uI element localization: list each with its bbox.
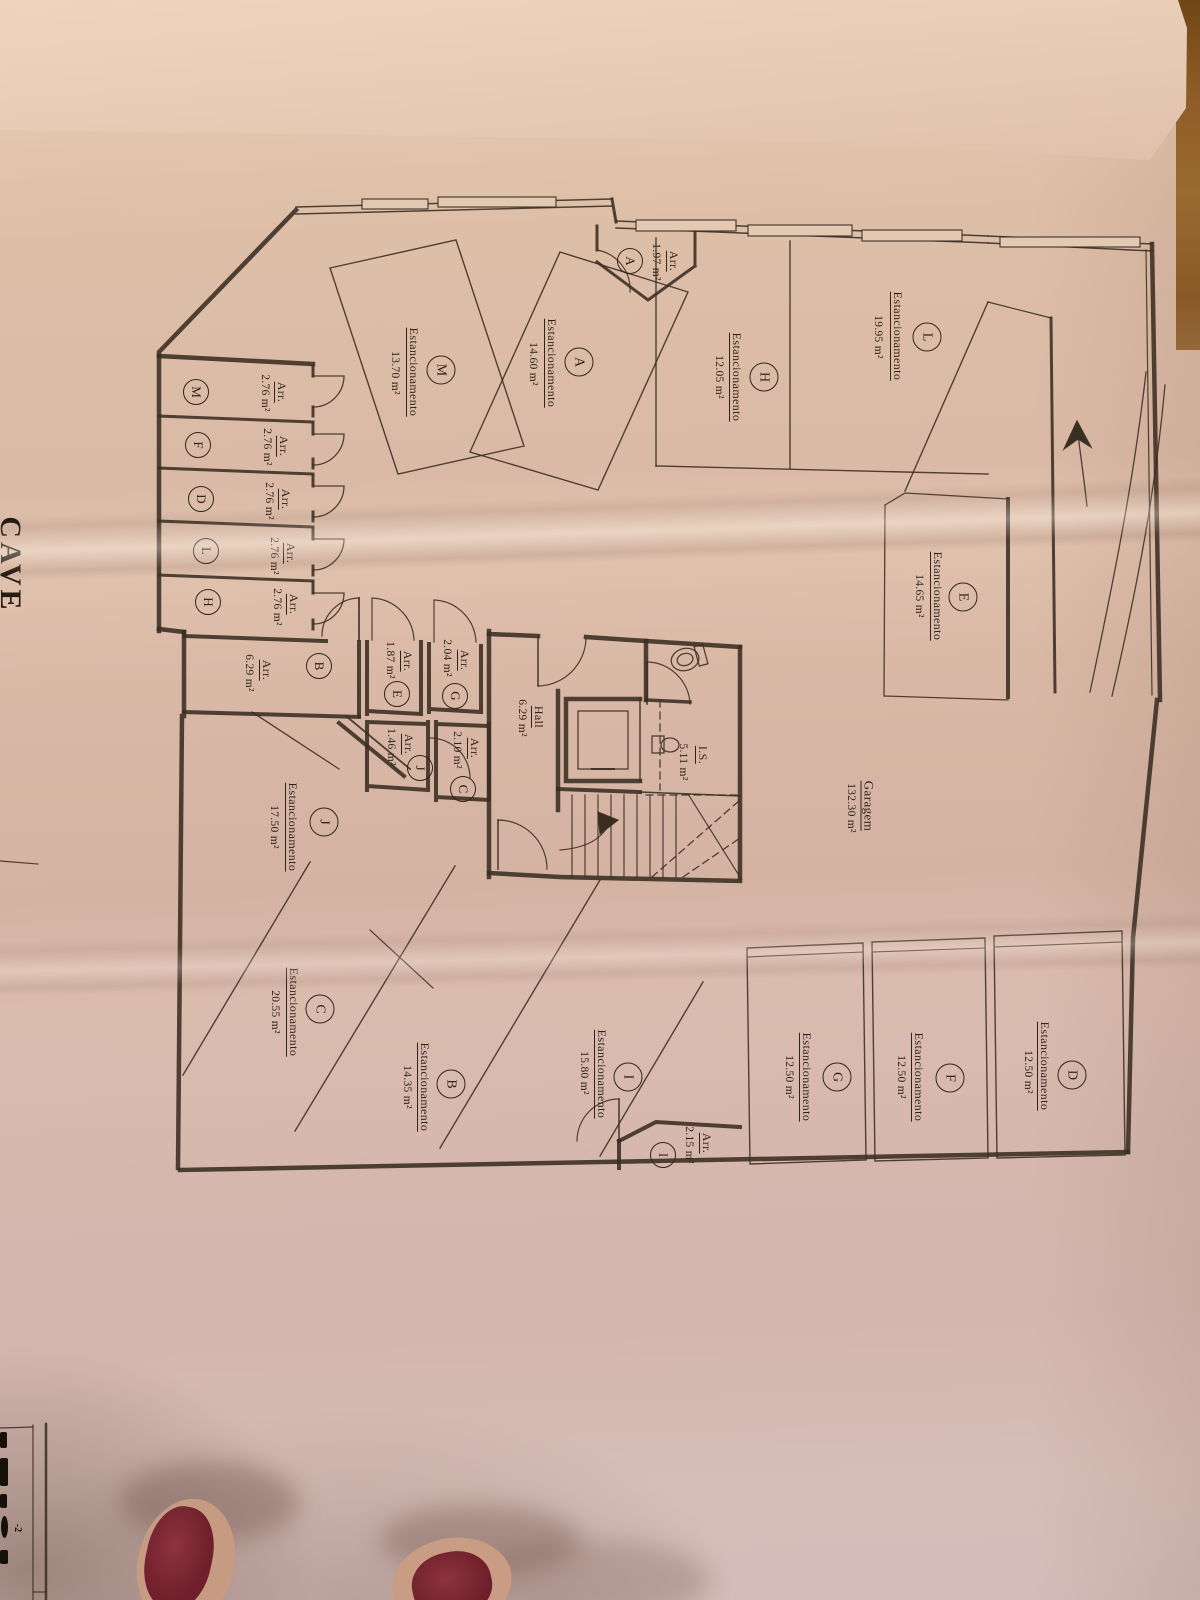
parking-H-label: Estancionamento <box>729 333 743 422</box>
storage-G-area: 2.04 m² <box>440 639 452 677</box>
ramp-corridor <box>988 250 1165 696</box>
parking-F-letter: F <box>936 1064 965 1093</box>
storage-C-letter: C <box>450 776 476 802</box>
understair-dashed <box>646 700 740 877</box>
storage-E-letter: E <box>384 681 410 707</box>
parking-A-area: 14.60 m² <box>526 342 538 386</box>
parking-C-area: 20.55 m² <box>268 990 280 1034</box>
top-wall-windows <box>296 197 1152 251</box>
parking-I-letter: I <box>614 1063 643 1092</box>
parking-B-area: 14.35 m² <box>400 1065 412 1109</box>
parking-L-area: 19.95 m² <box>871 315 883 359</box>
parking-E-letter: E <box>949 583 978 612</box>
photo-of-floor-plan: CAVE Estancionamento 19.95 m² L Estancio… <box>0 0 1200 1600</box>
storage-G-label: Arr. <box>457 650 471 671</box>
storage-I-label: Arr. <box>699 1133 713 1154</box>
parking-F-label: Estancionamento <box>911 1033 925 1122</box>
storage-cluster-doors <box>252 598 476 778</box>
parking-J-letter: J <box>310 808 339 837</box>
parking-D-letter: D <box>1058 1061 1087 1090</box>
storage-B-letter: B <box>306 653 332 679</box>
storage-H-area: 2.76 m² <box>270 588 282 626</box>
parking-M-area: 13.70 m² <box>388 351 400 395</box>
garage-label: Garagem <box>861 781 876 831</box>
hall-label: Hall <box>531 706 545 728</box>
storage-F-letter: F <box>185 432 211 458</box>
storage-J-area: 1.46 m² <box>384 728 396 766</box>
storage-C-label: Arr. <box>467 738 481 759</box>
title-block-fragment <box>1 1516 8 1538</box>
parking-D-area: 12.50 m² <box>1021 1050 1033 1094</box>
title-block-fragment <box>0 1458 8 1486</box>
garage-area: 132.30 m² <box>844 783 856 833</box>
toilet-icon <box>669 643 709 673</box>
storage-doors <box>313 376 344 624</box>
storage-E-area: 1.87 m² <box>383 641 395 679</box>
storage-J-letter: J <box>407 755 433 781</box>
elevator-shaft <box>566 699 640 781</box>
parking-H-area: 12.05 m² <box>712 355 724 399</box>
hall-area: 6.29 m² <box>515 699 527 737</box>
storage-F-label: Arr. <box>276 436 290 457</box>
parking-A-label: Estancionamento <box>544 319 558 408</box>
storage-G-letter: G <box>442 683 468 709</box>
storage-M-area: 2.76 m² <box>258 374 270 412</box>
storage-H-letter: H <box>195 589 221 615</box>
title-block-fragment <box>0 1494 7 1508</box>
storage-A-letter: A <box>617 248 643 274</box>
parking-J-label: Estancionamento <box>285 783 299 872</box>
parking-F-area: 12.50 m² <box>894 1055 906 1099</box>
storage-B-label: Arr. <box>259 660 273 681</box>
parking-G-letter: G <box>823 1063 852 1092</box>
storage-J-label: Arr. <box>401 734 415 755</box>
parking-L-letter: L <box>913 323 942 352</box>
diagonal-parking-bays-bottom <box>183 862 703 1156</box>
parking-D-label: Estancionamento <box>1037 1022 1051 1111</box>
parking-A-letter: A <box>565 348 594 377</box>
parking-L-label: Estancionamento <box>890 292 904 381</box>
parking-B-label: Estancionamento <box>417 1043 431 1132</box>
parking-J-area: 17.50 m² <box>267 805 279 849</box>
title-block-fragment <box>0 1432 7 1448</box>
parking-H-letter: H <box>750 363 779 392</box>
sink-icon <box>652 736 679 753</box>
parking-I-area: 15.80 m² <box>577 1051 589 1095</box>
storage-C-area: 2.10 m² <box>450 731 462 769</box>
storage-B-area: 6.29 m² <box>242 654 254 692</box>
storage-H-label: Arr. <box>286 594 300 615</box>
floor-plan-linework <box>0 0 1200 1600</box>
parking-G-label: Estancionamento <box>799 1033 813 1122</box>
wc-fixtures <box>646 643 740 877</box>
storage-A-label: Arr. <box>666 251 680 272</box>
storage-I-area: 2.15 m² <box>682 1126 694 1164</box>
title-block-fragment <box>0 1550 8 1564</box>
parking-B-letter: B <box>437 1070 466 1099</box>
parking-C-letter: C <box>306 995 335 1024</box>
storage-A-area: 1.97 m² <box>649 243 661 281</box>
storage-M-letter: M <box>183 379 209 405</box>
storage-M-label: Arr. <box>274 382 288 403</box>
parking-E-label: Estancionamento <box>930 552 944 641</box>
storage-F-area: 2.76 m² <box>260 428 272 466</box>
title-block-number: -2 <box>12 1524 22 1532</box>
storage-I-letter: I <box>650 1142 676 1168</box>
ramp-arrow-icon <box>1064 421 1091 449</box>
parking-M-label: Estancionamento <box>406 328 420 417</box>
parking-E-area: 14.65 m² <box>912 574 924 618</box>
storage-E-label: Arr. <box>400 651 414 672</box>
parking-I-label: Estancionamento <box>594 1030 608 1119</box>
stairs-arrow-icon <box>598 812 618 834</box>
stairs <box>560 792 740 877</box>
wc-area: 5.11 m² <box>676 743 688 780</box>
wc-label: I.S. <box>695 746 709 764</box>
parking-G-area: 12.50 m² <box>782 1055 794 1099</box>
parking-M-letter: M <box>427 356 456 385</box>
